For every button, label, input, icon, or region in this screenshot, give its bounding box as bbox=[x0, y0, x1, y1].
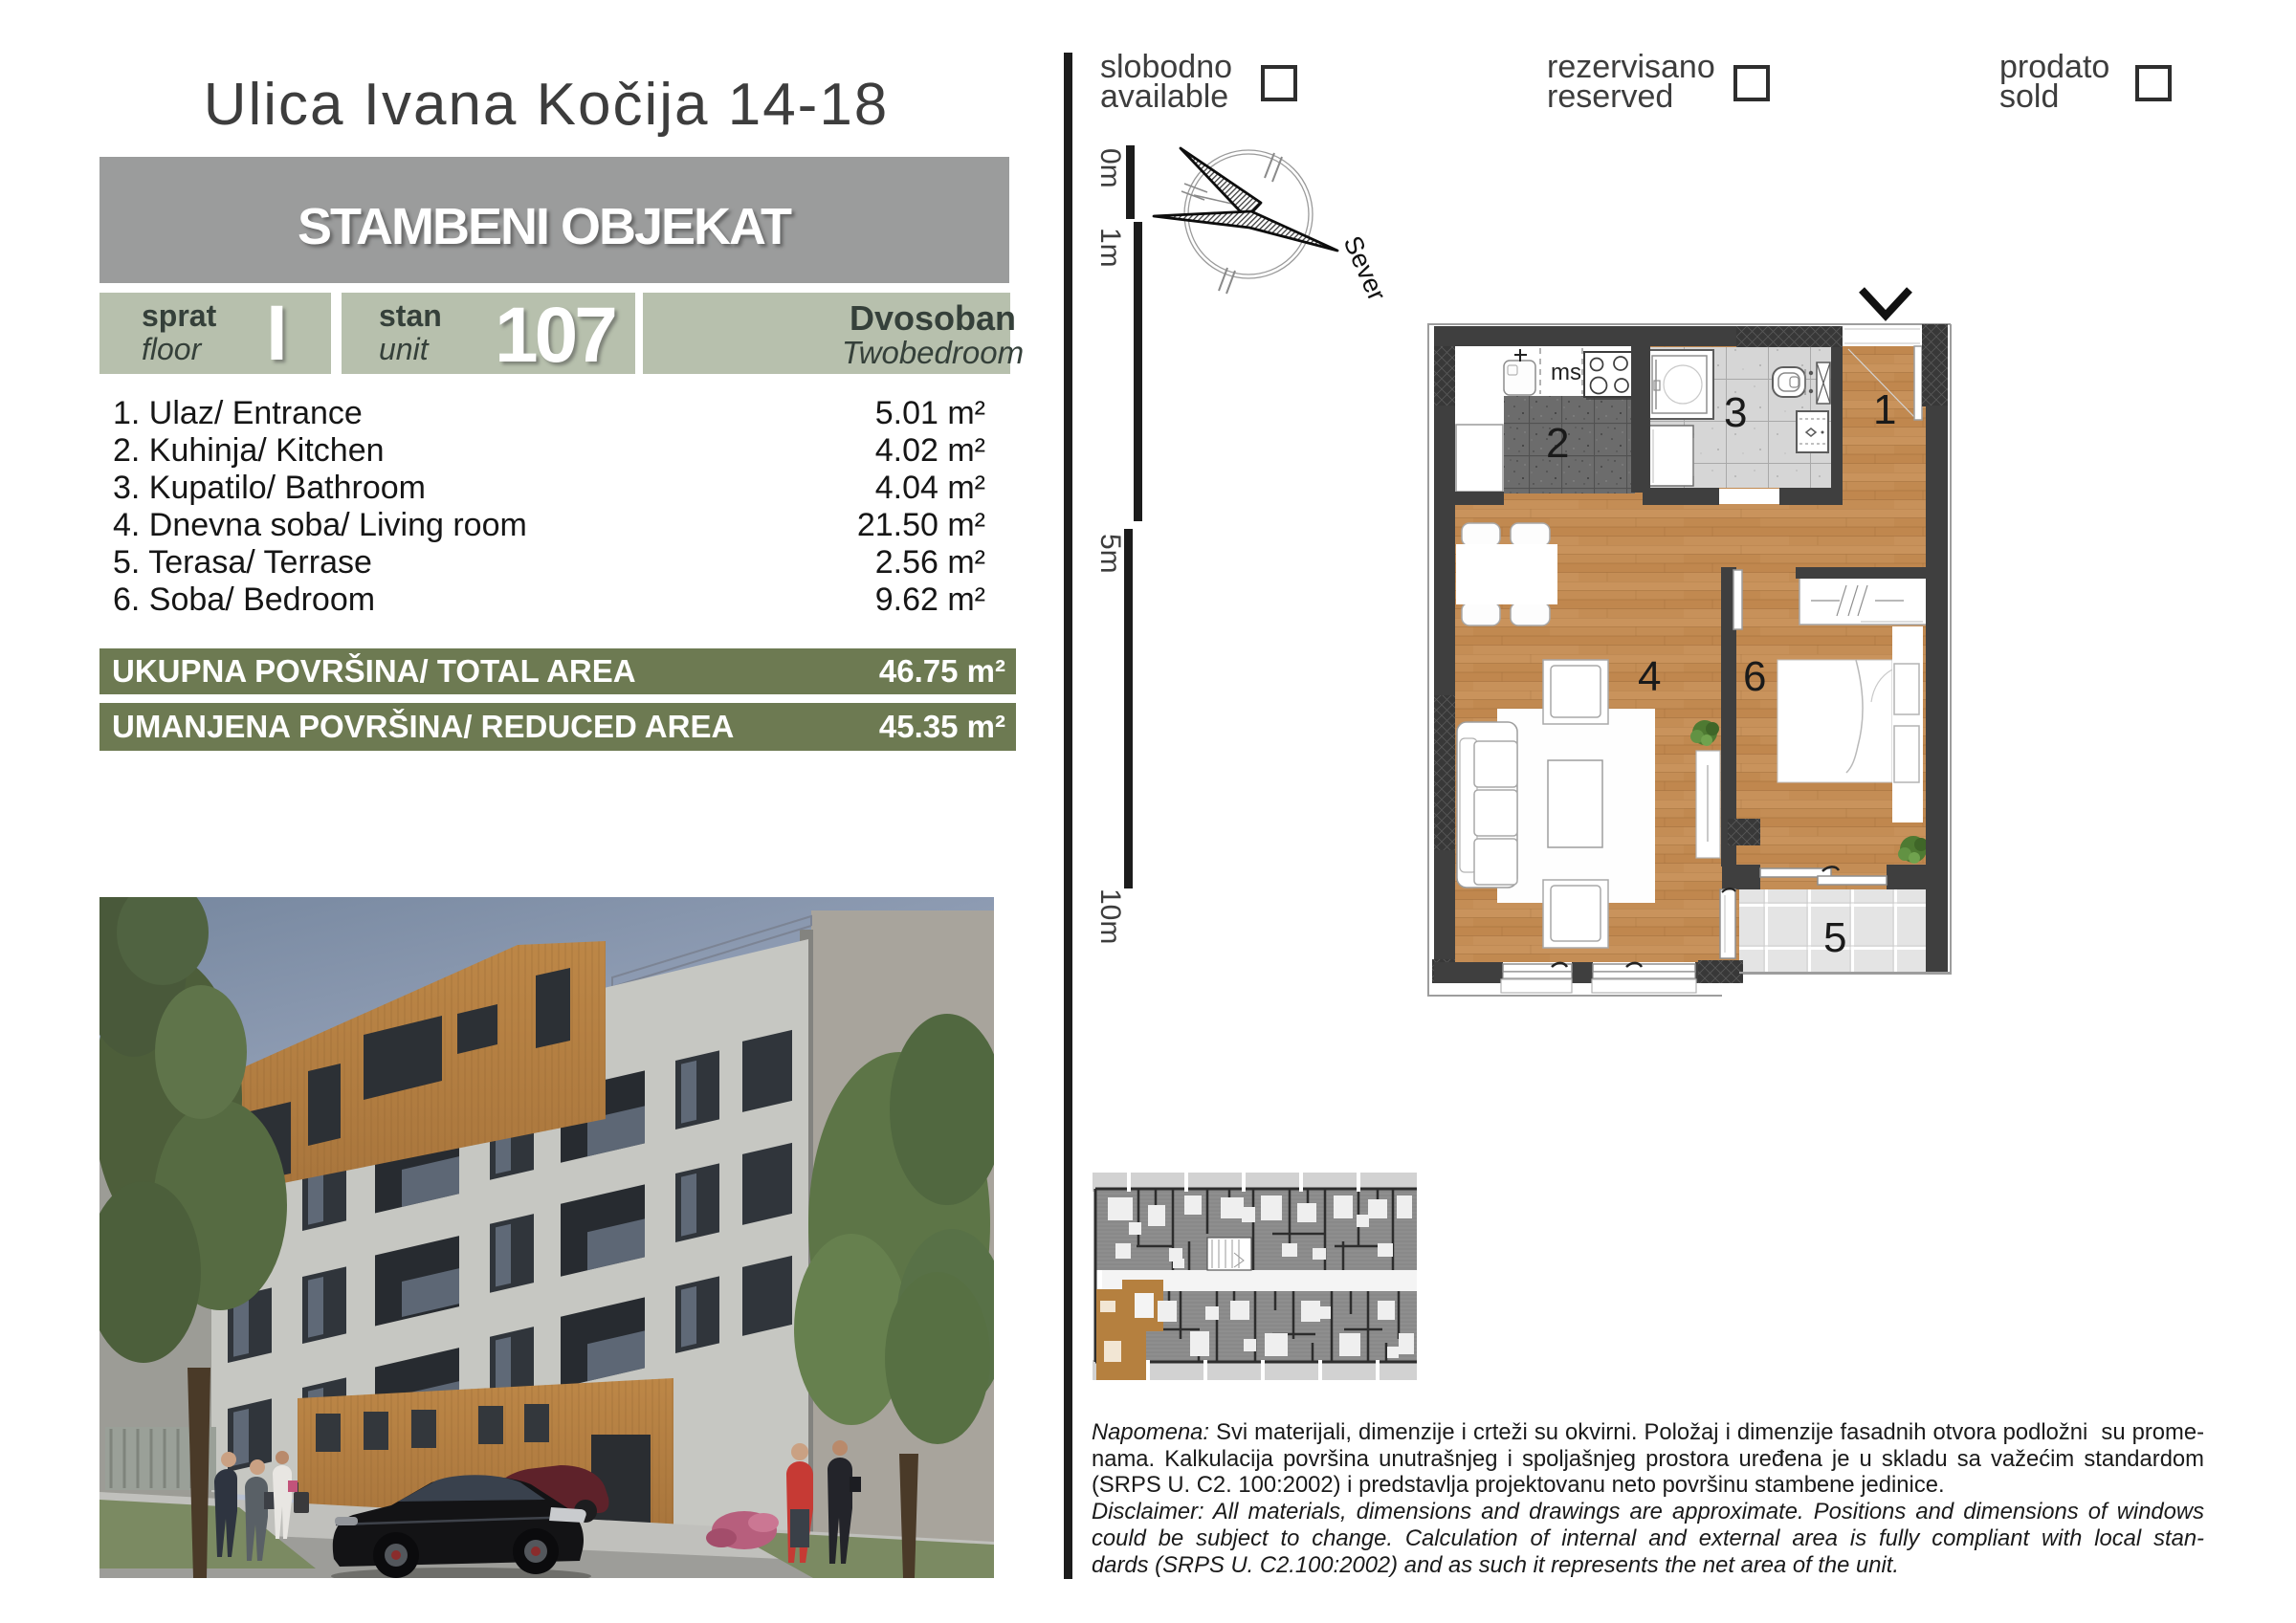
svg-text:6: 6 bbox=[1743, 653, 1766, 700]
svg-text:4: 4 bbox=[1638, 653, 1661, 700]
svg-text:Sever: Sever bbox=[1338, 231, 1392, 305]
svg-text:ms: ms bbox=[1551, 360, 1581, 385]
svg-text:3: 3 bbox=[1724, 389, 1747, 436]
svg-text:2: 2 bbox=[1546, 420, 1569, 467]
svg-text:0m: 0m bbox=[1094, 148, 1126, 188]
svg-text:10m: 10m bbox=[1094, 888, 1126, 944]
svg-text:5: 5 bbox=[1823, 914, 1846, 961]
svg-text:5m: 5m bbox=[1094, 534, 1126, 574]
svg-text:1: 1 bbox=[1873, 386, 1896, 433]
svg-text:1m: 1m bbox=[1094, 228, 1126, 268]
